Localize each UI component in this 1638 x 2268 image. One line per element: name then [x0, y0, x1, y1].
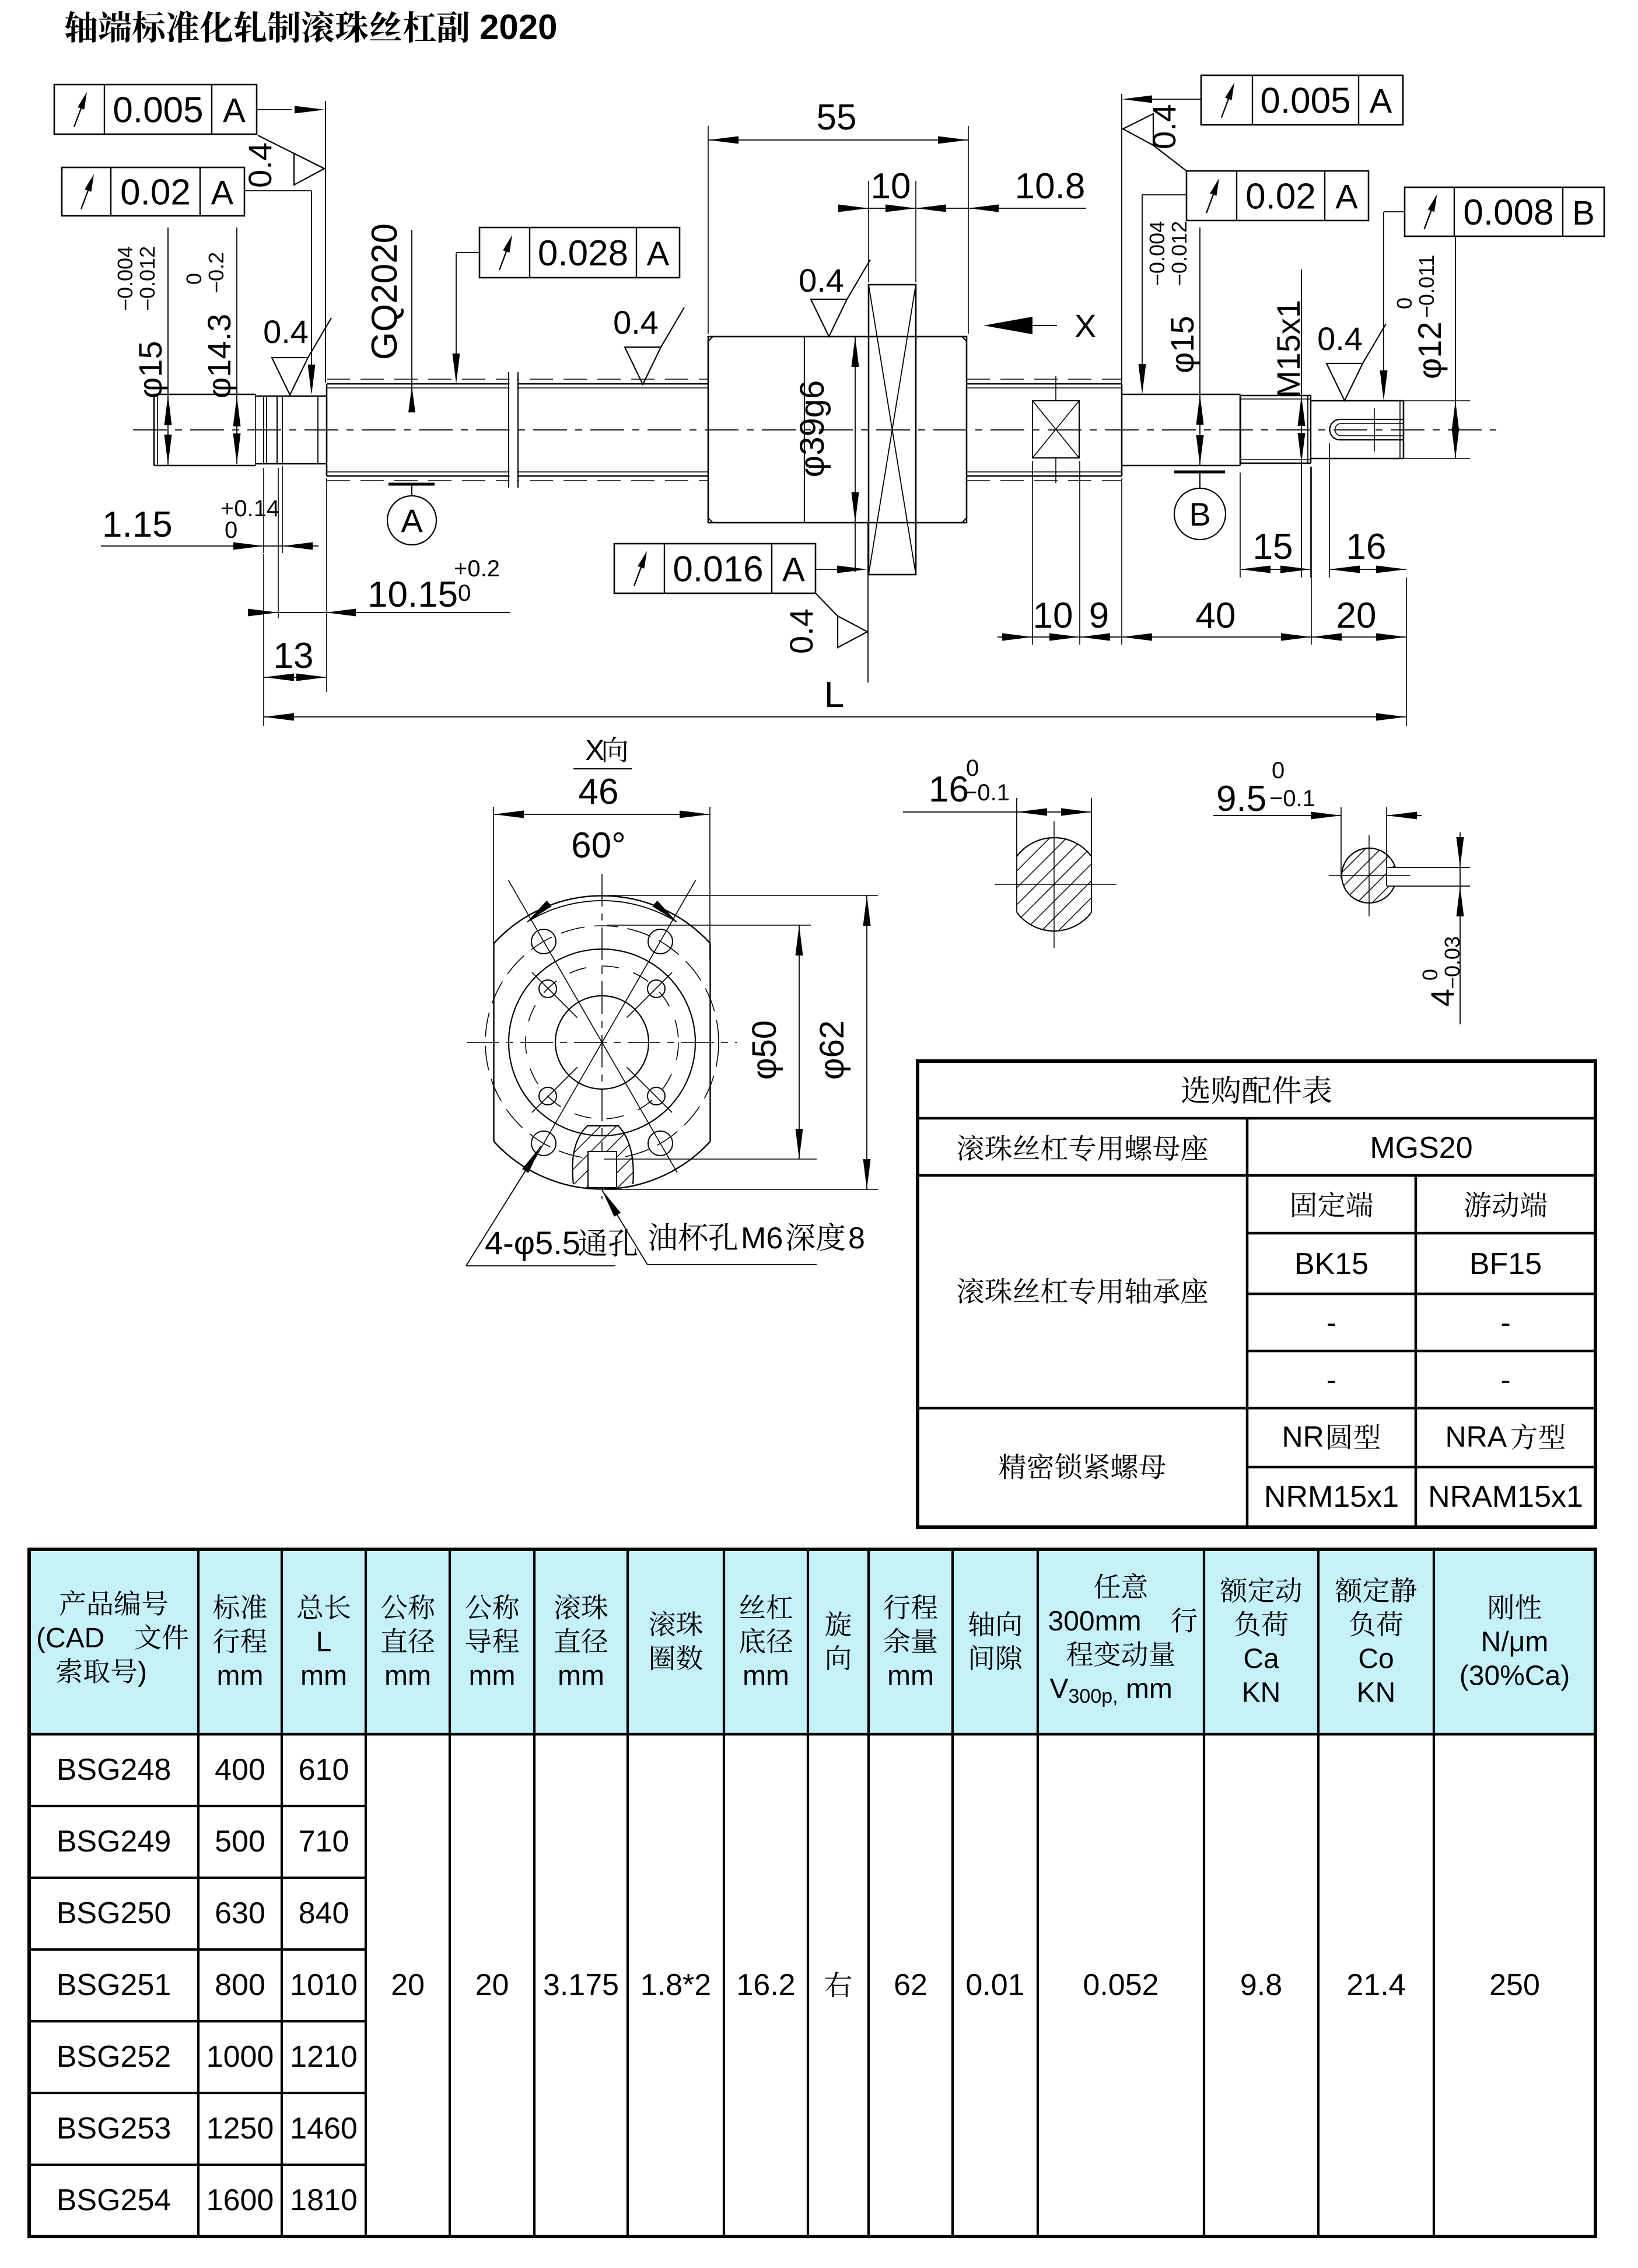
svg-text:2020: 2020 [480, 8, 557, 47]
svg-text:NRAM15x1: NRAM15x1 [1428, 1480, 1583, 1514]
svg-text:X: X [1074, 307, 1096, 344]
svg-text:−0.004: −0.004 [113, 246, 137, 311]
svg-text:NR: NR [1282, 1420, 1324, 1453]
svg-text:0.4: 0.4 [263, 313, 309, 350]
svg-text:20: 20 [475, 1968, 509, 2002]
svg-text:1000: 1000 [206, 2040, 274, 2074]
svg-text:φ39g6: φ39g6 [793, 380, 831, 478]
svg-text:mm: mm [558, 1661, 604, 1692]
svg-text:−0.1: −0.1 [964, 780, 1010, 806]
svg-text:0.4: 0.4 [799, 262, 844, 299]
svg-text:φ15: φ15 [1164, 316, 1200, 373]
svg-text:250: 250 [1489, 1968, 1540, 2002]
svg-text:mm: mm [384, 1661, 431, 1692]
svg-text:8: 8 [848, 1221, 865, 1255]
svg-text:0.4: 0.4 [1317, 320, 1363, 357]
svg-text:NRM15x1: NRM15x1 [1264, 1480, 1399, 1514]
svg-text:16.2: 16.2 [736, 1968, 795, 2002]
svg-text:0: 0 [1272, 758, 1284, 783]
svg-text:+0.2: +0.2 [454, 556, 500, 582]
svg-text:mm: mm [743, 1661, 789, 1692]
svg-text:0.02: 0.02 [120, 173, 191, 213]
svg-text:A: A [211, 174, 234, 212]
svg-text:−0.011: −0.011 [1415, 255, 1438, 318]
svg-text:610: 610 [299, 1753, 349, 1787]
svg-text:0.052: 0.052 [1083, 1968, 1158, 2002]
svg-text:φ12: φ12 [1411, 321, 1448, 379]
svg-text:L: L [824, 675, 844, 715]
svg-text:0.028: 0.028 [538, 233, 628, 274]
svg-text:(CAD: (CAD [36, 1623, 104, 1654]
svg-text:A: A [1335, 178, 1358, 216]
svg-text:1010: 1010 [290, 1968, 358, 2002]
svg-text:A: A [223, 92, 246, 130]
svg-text:1.15: 1.15 [102, 505, 173, 545]
svg-text:0: 0 [1418, 969, 1442, 981]
svg-text:9: 9 [1089, 596, 1109, 636]
svg-text:1810: 1810 [290, 2183, 358, 2217]
svg-text:15: 15 [1253, 527, 1293, 567]
svg-text:−0.012: −0.012 [1167, 221, 1191, 286]
svg-text:9.8: 9.8 [1240, 1968, 1282, 2002]
svg-text:0: 0 [225, 517, 237, 543]
svg-text:BSG253: BSG253 [57, 2112, 171, 2145]
svg-text:300mm: 300mm [1048, 1606, 1142, 1637]
svg-text:KN: KN [1242, 1678, 1281, 1709]
svg-text:21.4: 21.4 [1346, 1968, 1405, 2002]
svg-text:BSG249: BSG249 [57, 1825, 171, 1859]
svg-text:-: - [1500, 1306, 1510, 1340]
svg-text:-: - [1326, 1363, 1336, 1397]
svg-text:500: 500 [215, 1825, 265, 1859]
svg-text:BSG254: BSG254 [57, 2183, 171, 2217]
svg-text:L: L [316, 1627, 332, 1658]
svg-text:840: 840 [299, 1896, 349, 1930]
svg-text:-: - [1500, 1363, 1510, 1397]
svg-text:B: B [1189, 496, 1210, 533]
svg-text:−0.03: −0.03 [1440, 936, 1464, 989]
svg-text:BK15: BK15 [1294, 1247, 1368, 1281]
svg-text:Co: Co [1358, 1644, 1394, 1675]
svg-text:0: 0 [182, 273, 206, 285]
svg-text:0.005: 0.005 [113, 90, 203, 131]
svg-text:0.4: 0.4 [783, 608, 820, 654]
svg-text:1210: 1210 [290, 2040, 358, 2074]
svg-text:φ62: φ62 [813, 1020, 851, 1080]
svg-text:φ14.3: φ14.3 [201, 314, 237, 398]
svg-text:(30%Ca): (30%Ca) [1459, 1661, 1570, 1692]
svg-text:60°: 60° [571, 825, 626, 866]
svg-text:0.016: 0.016 [673, 549, 763, 590]
svg-text:mm: mm [887, 1661, 934, 1692]
svg-text:10: 10 [871, 166, 911, 206]
svg-text:mm: mm [300, 1661, 347, 1692]
svg-text:400: 400 [215, 1753, 265, 1787]
svg-text:10: 10 [1033, 596, 1073, 636]
svg-text:BSG248: BSG248 [57, 1753, 171, 1787]
svg-text:16: 16 [1346, 527, 1387, 567]
svg-text:62: 62 [894, 1968, 928, 2002]
svg-text:1250: 1250 [206, 2112, 274, 2145]
svg-text:710: 710 [299, 1825, 349, 1859]
svg-text:Ca: Ca [1243, 1644, 1279, 1675]
svg-text:φ50: φ50 [745, 1020, 783, 1080]
svg-text:3.175: 3.175 [543, 1968, 619, 2002]
svg-text:40: 40 [1196, 596, 1236, 636]
svg-text:A: A [782, 551, 805, 589]
svg-text:10.15: 10.15 [367, 575, 458, 615]
svg-text:B: B [1572, 194, 1595, 232]
svg-text:20: 20 [1336, 596, 1377, 636]
svg-text:): ) [138, 1657, 147, 1688]
svg-text:0.4: 0.4 [613, 304, 659, 341]
svg-text:M6: M6 [741, 1221, 783, 1255]
svg-text:1600: 1600 [206, 2183, 274, 2217]
svg-text:BSG252: BSG252 [57, 2040, 171, 2074]
svg-text:4: 4 [1424, 989, 1461, 1007]
svg-text:0.4: 0.4 [242, 142, 278, 188]
svg-text:-: - [1326, 1306, 1336, 1340]
svg-text:A: A [401, 502, 423, 539]
svg-text:M15x1: M15x1 [1270, 300, 1307, 398]
svg-text:BF15: BF15 [1469, 1247, 1542, 1281]
svg-text:mm: mm [217, 1661, 264, 1692]
svg-text:mm: mm [469, 1661, 516, 1692]
svg-text:MGS20: MGS20 [1370, 1131, 1472, 1165]
svg-text:0: 0 [966, 755, 979, 781]
svg-text:−0.1: −0.1 [1269, 786, 1315, 811]
svg-text:9.5: 9.5 [1216, 779, 1266, 819]
svg-text:KN: KN [1357, 1678, 1396, 1709]
svg-text:46: 46 [579, 772, 619, 812]
svg-text:1460: 1460 [290, 2112, 358, 2145]
svg-text:0.008: 0.008 [1463, 192, 1553, 233]
svg-text:NRA: NRA [1445, 1420, 1507, 1453]
svg-text:φ15: φ15 [132, 341, 169, 398]
svg-text:GQ2020: GQ2020 [365, 223, 405, 360]
svg-text:A: A [1370, 83, 1392, 121]
svg-text:X: X [585, 734, 604, 766]
svg-text:20: 20 [391, 1968, 425, 2002]
svg-text:−0.2: −0.2 [204, 252, 228, 293]
svg-text:N/μm: N/μm [1481, 1627, 1549, 1658]
svg-text:4-φ5.5: 4-φ5.5 [485, 1224, 580, 1261]
svg-text:−0.004: −0.004 [1145, 221, 1169, 286]
svg-text:0: 0 [1392, 297, 1416, 309]
svg-text:BSG250: BSG250 [57, 1896, 171, 1930]
svg-text:0.01: 0.01 [965, 1968, 1024, 2002]
svg-text:BSG251: BSG251 [57, 1968, 171, 2002]
svg-text:630: 630 [215, 1896, 265, 1930]
svg-text:0: 0 [458, 580, 471, 606]
svg-text:1.8*2: 1.8*2 [640, 1968, 711, 2002]
svg-text:A: A [647, 235, 670, 273]
svg-text:0.02: 0.02 [1245, 177, 1316, 217]
svg-text:55: 55 [817, 97, 857, 138]
svg-text:10.8: 10.8 [1015, 166, 1086, 206]
svg-text:−0.012: −0.012 [135, 246, 159, 311]
svg-text:800: 800 [215, 1968, 265, 2002]
svg-text:0.4: 0.4 [1146, 104, 1182, 149]
svg-text:16: 16 [929, 769, 969, 810]
svg-text:0.005: 0.005 [1260, 81, 1350, 121]
svg-text:13: 13 [274, 636, 314, 676]
